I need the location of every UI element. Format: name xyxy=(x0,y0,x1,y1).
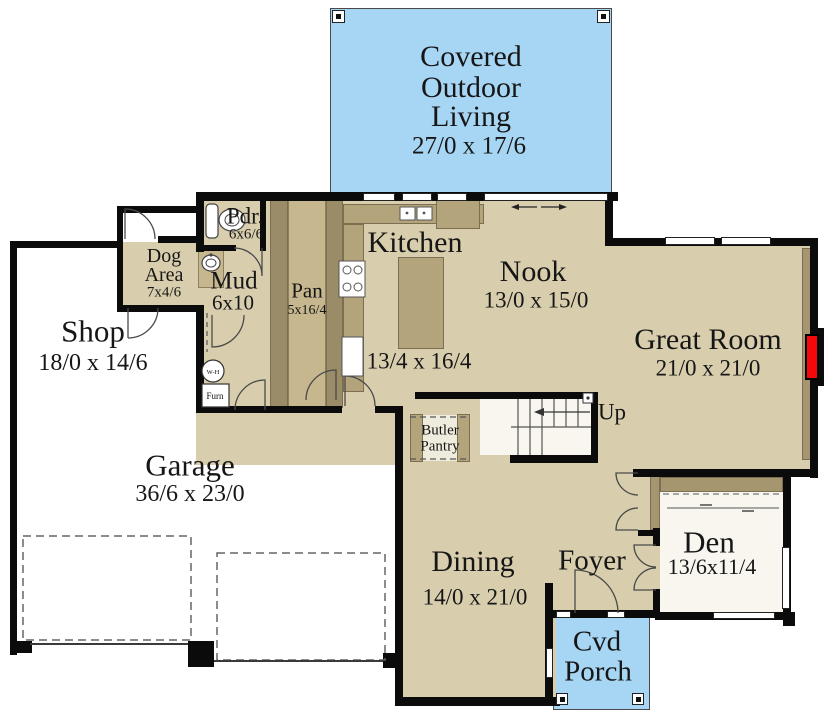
den-french-door-bottom xyxy=(634,568,656,590)
covered-outdoor-living-label: Covered xyxy=(420,42,522,72)
kitchen-label: Kitchen xyxy=(368,228,463,258)
butler-pantry-label: Pantry xyxy=(420,440,459,455)
stair-newel xyxy=(583,393,593,403)
garage-entry-door xyxy=(235,380,265,410)
garage-label: Garage xyxy=(145,450,235,481)
covered-porch-label: Porch xyxy=(564,658,632,687)
butler-pantry-label: Butler xyxy=(421,424,459,439)
nook-label: Nook xyxy=(500,257,567,287)
pantry-label: Pan xyxy=(291,281,323,302)
furnace-label: Furn xyxy=(206,391,224,401)
water-heater-icon: W-H xyxy=(202,360,224,382)
foyer-label: Foyer xyxy=(558,547,626,576)
dog-area-shop-door xyxy=(128,308,158,338)
kitchen-dim: 13/4 x 16/4 xyxy=(367,350,472,373)
water-heater-label: W-H xyxy=(207,369,220,376)
covered-porch-label: Cvd xyxy=(573,628,621,657)
great-room-label: Great Room xyxy=(634,325,781,355)
powder-dim: 6x6/6 xyxy=(229,228,263,243)
dog-area-label: Area xyxy=(145,265,184,285)
dog-area-label: Dog xyxy=(147,246,181,266)
dishwasher-icon xyxy=(342,337,363,376)
covered-outdoor-living-label: Living xyxy=(431,102,511,132)
dog-area-dim: 7x4/6 xyxy=(147,286,181,301)
up-arrow xyxy=(534,408,590,416)
dining-dim: 14/0 x 21/0 xyxy=(423,586,528,609)
staircase xyxy=(511,399,591,455)
shop-dim: 18/0 x 14/6 xyxy=(38,351,147,375)
nook-dim: 13/0 x 15/0 xyxy=(484,289,589,312)
den-french-door-top xyxy=(634,545,656,567)
dog-area-exterior-door xyxy=(125,209,155,239)
stairs-up-label: Up xyxy=(598,401,626,424)
garage-dim: 36/6 x 23/0 xyxy=(135,482,244,506)
floor-plan: W-H Furn Covered Outdoor Living 27/0 x 1… xyxy=(0,0,840,720)
covered-outdoor-living-label: Outdoor xyxy=(421,73,521,103)
great-room-dim: 21/0 x 21/0 xyxy=(656,357,761,380)
kitchen-hall-door xyxy=(345,376,375,406)
stove-icon xyxy=(339,261,365,297)
den-label: Den xyxy=(683,527,735,558)
garage-door-dashed xyxy=(23,536,385,660)
pantry-dim: 5x16/4 xyxy=(288,304,327,318)
pantry-door xyxy=(306,370,336,400)
den-cased-opening xyxy=(667,505,779,511)
dining-label: Dining xyxy=(431,547,514,577)
closet-door-top xyxy=(616,473,638,495)
den-dim: 13/6x11/4 xyxy=(668,556,756,578)
shop-label: Shop xyxy=(61,316,125,347)
kitchen-sink-icon xyxy=(400,207,432,220)
covered-outdoor-living-dim: 27/0 x 17/6 xyxy=(412,134,526,159)
mud-closet-door xyxy=(212,315,244,347)
closet-door-bottom xyxy=(616,508,638,530)
slider-arrows xyxy=(511,204,567,210)
mud-dim: 6x10 xyxy=(212,293,254,314)
furnace-icon: Furn xyxy=(202,384,229,407)
powder-label: Pdr. xyxy=(227,205,263,228)
